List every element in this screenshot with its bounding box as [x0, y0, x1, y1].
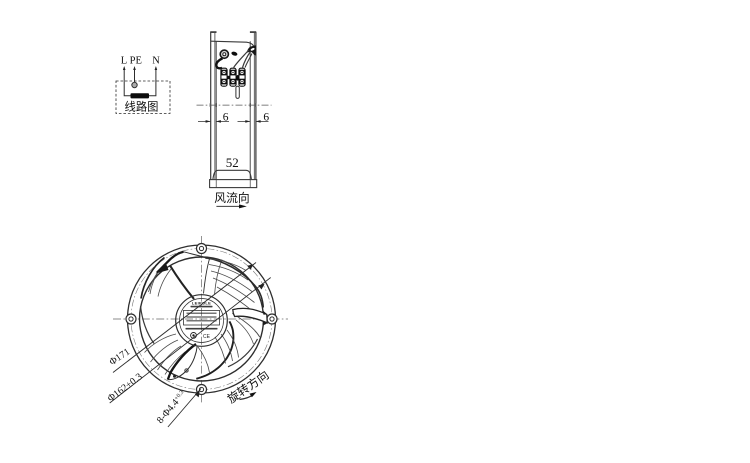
- svg-text:CE: CE: [203, 334, 211, 340]
- svg-text:6: 6: [263, 111, 269, 123]
- svg-text:PE: PE: [130, 56, 142, 67]
- svg-text:8-Φ4.4+0.3: 8-Φ4.4+0.3: [155, 389, 189, 426]
- svg-text:线路图: 线路图: [125, 99, 159, 113]
- svg-text:52: 52: [226, 155, 239, 170]
- svg-text:风流向: 风流向: [214, 191, 249, 205]
- svg-text:Φ162±0.3: Φ162±0.3: [106, 371, 145, 404]
- svg-text:L: L: [121, 56, 127, 67]
- svg-text:N: N: [152, 56, 160, 67]
- svg-text:6: 6: [223, 111, 229, 123]
- svg-text:Φ171: Φ171: [108, 346, 133, 368]
